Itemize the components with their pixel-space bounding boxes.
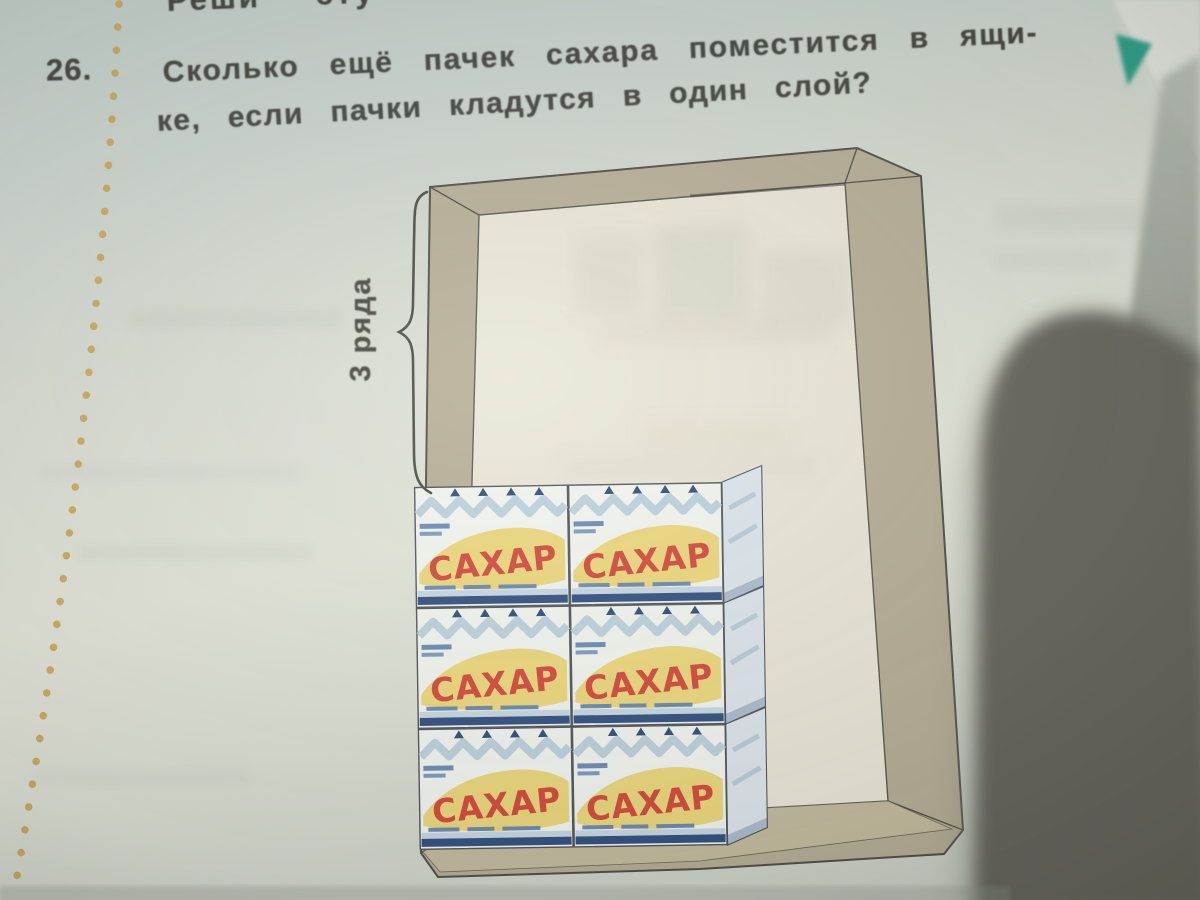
sugar-pack	[572, 725, 727, 847]
sugar-pack	[418, 727, 573, 849]
sugar-pack-side	[724, 587, 766, 725]
sugar-pack-side	[726, 708, 768, 846]
thumb-shadow	[975, 312, 1200, 900]
rows-bracket-label: 3 ряда	[342, 254, 380, 404]
sugar-pack	[415, 485, 570, 607]
dotted-margin-line	[16, 4, 119, 882]
sugar-pack	[417, 606, 572, 728]
sugar-pack-side	[722, 466, 764, 604]
problem-number: 26.	[46, 51, 93, 88]
sugar-pack	[570, 604, 725, 726]
bottom-edge-strip	[0, 886, 1010, 900]
sugar-packs-stack	[414, 466, 767, 850]
sugar-pack	[569, 483, 724, 605]
textbook-page-photo: САХАР	[0, 0, 1200, 900]
